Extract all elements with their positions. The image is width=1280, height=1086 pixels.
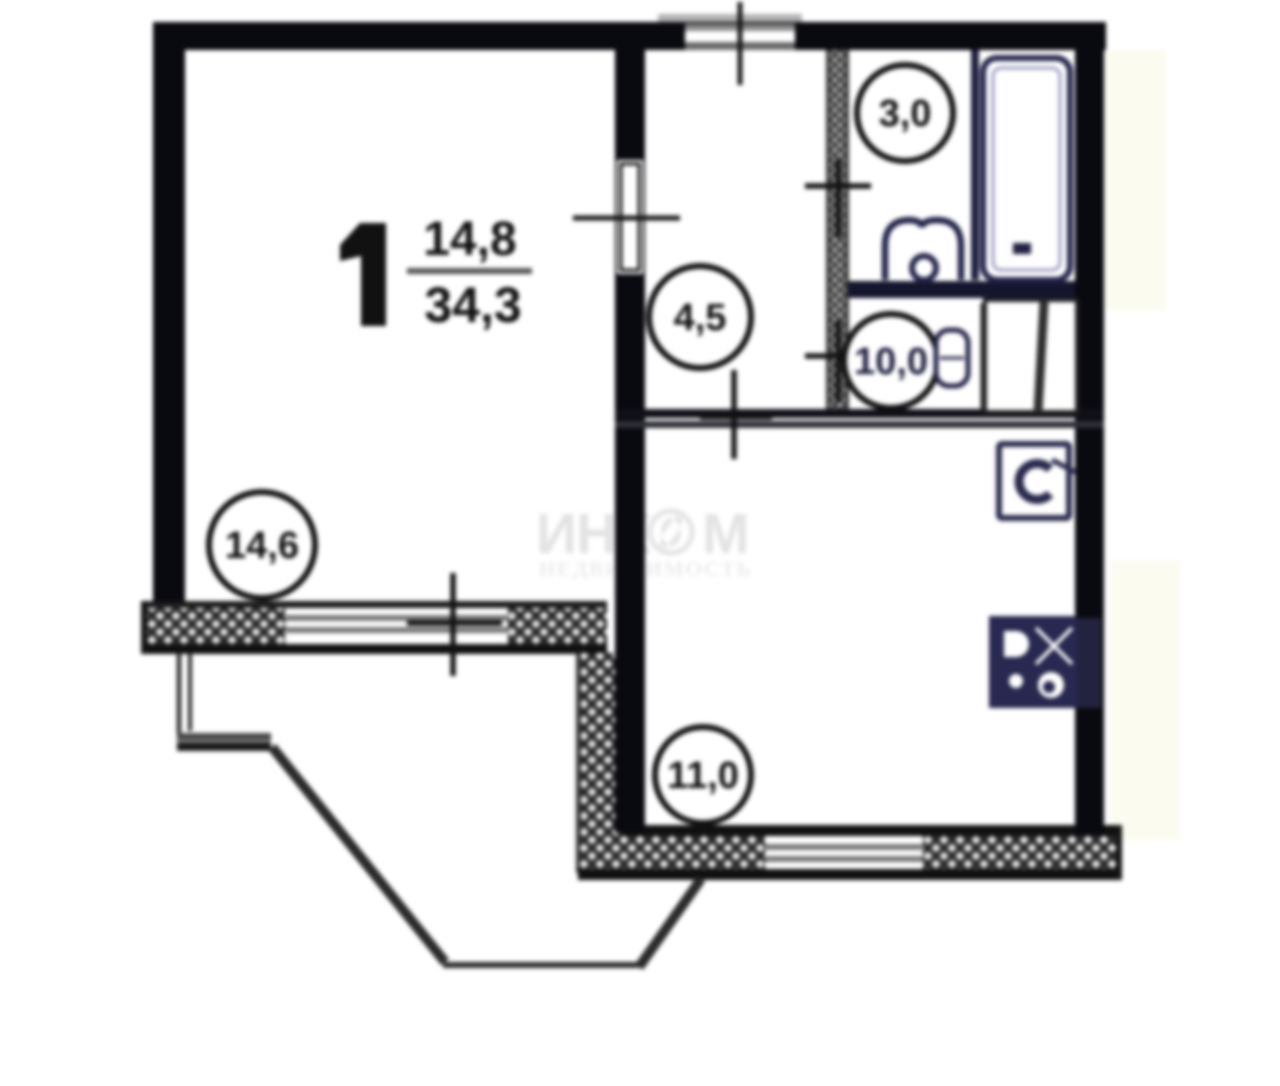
- svg-text:14,8: 14,8: [423, 213, 516, 266]
- svg-text:34,3: 34,3: [424, 277, 521, 333]
- svg-text:14,6: 14,6: [225, 525, 299, 567]
- svg-text:10,0: 10,0: [854, 341, 928, 383]
- svg-text:11,0: 11,0: [667, 755, 739, 797]
- svg-text:НЕДВИЖИМОСТЬ: НЕДВИЖИМОСТЬ: [539, 557, 752, 581]
- svg-text:4,5: 4,5: [674, 297, 727, 339]
- svg-text:3,0: 3,0: [879, 93, 932, 135]
